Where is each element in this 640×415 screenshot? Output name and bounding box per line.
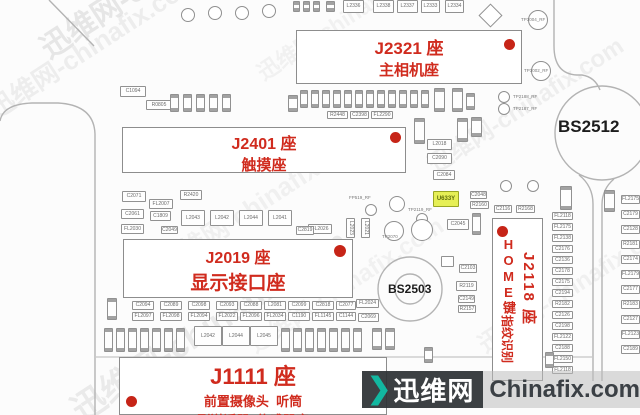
component-unlabeled <box>333 90 341 108</box>
component-unlabeled <box>441 256 454 267</box>
component-unlabeled <box>305 328 314 352</box>
component-FL2022: FL2022 <box>216 312 238 321</box>
component-unlabeled <box>281 328 290 352</box>
component-unlabeled <box>209 94 218 112</box>
component-unlabeled <box>326 1 335 12</box>
component-unlabeled <box>128 328 137 352</box>
component-C2045: C2045 <box>447 219 469 230</box>
component-FL2179: FL2179 <box>621 270 640 279</box>
component-L2337: L2337 <box>397 0 418 13</box>
connector-j2321-subtitle: 主相机座 <box>297 59 521 80</box>
component-unlabeled <box>317 328 326 352</box>
component-C2116: C2116 <box>494 205 512 213</box>
component-C2061: C2061 <box>121 209 144 219</box>
component-L2081: L2081 <box>264 301 286 310</box>
component-FL2150: FL2150 <box>552 355 573 363</box>
component-unlabeled <box>471 117 482 137</box>
component-L2338: L2338 <box>373 0 394 13</box>
component-R2168: R2168 <box>516 205 535 213</box>
component-unlabeled <box>353 328 362 352</box>
component-unlabeled <box>196 94 205 112</box>
connector-j2019-title: J2019 座 <box>124 244 352 268</box>
component-FL2175: FL2175 <box>552 223 573 231</box>
component-unlabeled <box>322 90 330 108</box>
component-unlabeled <box>452 88 463 112</box>
component-unlabeled <box>140 328 149 352</box>
component-unlabeled <box>344 90 352 108</box>
connector-j2019-subtitle: 显示接口座 <box>124 268 352 295</box>
component-L2333: L2333 <box>421 0 440 13</box>
component-FL2138: FL2138 <box>552 234 573 242</box>
testpoint-label-TP2070: TP2070 <box>382 234 398 239</box>
component-C2127: C2127 <box>621 315 640 324</box>
component-unlabeled <box>466 93 475 110</box>
component-C2069: C2069 <box>358 313 379 322</box>
connector-j1111-line2: 副送话器 传感器座 <box>120 410 386 415</box>
component-FL2123: FL2123 <box>621 330 640 339</box>
component-unlabeled <box>545 352 554 368</box>
component-C2178: C2178 <box>552 267 573 275</box>
component-L2043: L2043 <box>181 210 205 226</box>
component-C2093: C2093 <box>216 301 238 310</box>
component-unlabeled <box>377 90 385 108</box>
chevron-icon: ❯ <box>367 375 391 404</box>
component-FL2097: FL2097 <box>132 312 154 321</box>
component-C2149: C2149 <box>458 295 475 303</box>
component-C2818: C2818 <box>312 301 334 310</box>
component-unlabeled <box>399 90 407 108</box>
component-C2194: C2194 <box>552 289 573 297</box>
component-FL2122: FL2122 <box>552 333 573 341</box>
component-C2176: C2176 <box>552 245 573 253</box>
component-R2160: R2160 <box>470 201 489 209</box>
component-C2098: C2098 <box>188 301 210 310</box>
connector-j2321-title: J2321 座 <box>297 34 521 59</box>
watermark-bar: ❯ 迅维网 Chinafix.com <box>362 371 640 408</box>
highlighted-component-U633Y: U633Y <box>433 191 459 207</box>
component-FL1145: FL1145 <box>312 312 334 321</box>
testpoint-label-TP3002_RF: TP3002_RF <box>524 68 548 73</box>
component-C2099: C2099 <box>288 301 310 310</box>
component-FL2094: FL2094 <box>188 312 210 321</box>
component-C2094: C2094 <box>132 301 154 310</box>
component-unlabeled <box>288 95 298 112</box>
component-C2174: C2174 <box>621 255 640 264</box>
component-C2136: C2136 <box>552 256 573 264</box>
component-L2044: L2044 <box>239 210 263 226</box>
component-R2420: R2420 <box>180 190 202 200</box>
component-FL2290: FL2290 <box>371 111 393 119</box>
testpoint-label-TP2119_RF: TP2119_RF <box>408 207 432 212</box>
testpoint <box>208 6 222 20</box>
testpoint-label-TP2188_RF: TP2188_RF <box>513 94 537 99</box>
testpoint-label-TP2187_RF: TP2187_RF <box>513 106 537 111</box>
component-unlabeled <box>116 328 125 352</box>
component-C2398: C2398 <box>350 111 369 119</box>
component-R2157: R2157 <box>458 305 476 313</box>
testpoint <box>389 196 405 212</box>
component-FL2175: FL2175 <box>621 195 640 204</box>
component-L2041: L2041 <box>268 210 292 226</box>
component-R2181: R2181 <box>621 240 640 249</box>
watermark-site-cn: 迅维网 <box>393 371 474 408</box>
connector-j2321: J2321 座 主相机座 <box>296 30 522 84</box>
component-unlabeled <box>170 94 179 112</box>
connector-j2118: HOME键 指纹识别 J2118 座 <box>492 218 543 381</box>
testpoint <box>181 8 195 22</box>
bs2512-label: BS2512 <box>558 117 619 137</box>
watermark-bar-left: ❯ 迅维网 <box>362 371 483 408</box>
component-FL2098: FL2098 <box>160 312 182 321</box>
component-unlabeled <box>107 298 117 320</box>
connector-j2401: J2401 座 触摸座 <box>122 127 406 173</box>
component-L2042: L2042 <box>210 210 234 226</box>
testpoint <box>411 219 433 241</box>
bs2503-label: BS2503 <box>388 282 431 296</box>
component-unlabeled <box>152 328 161 352</box>
component-FL2034: FL2034 <box>264 312 286 321</box>
component-unlabeled <box>104 328 113 352</box>
component-unlabeled <box>410 90 418 108</box>
component-unlabeled <box>313 1 320 12</box>
component-C2090: C2090 <box>427 153 452 164</box>
connector-j2019-marker-dot <box>334 245 346 257</box>
component-C2128: C2128 <box>621 225 640 234</box>
component-C1144: C1144 <box>336 312 356 321</box>
testpoint <box>235 6 249 20</box>
connector-j2118-title: J2118 座 <box>519 252 540 326</box>
component-unlabeled <box>414 118 425 144</box>
component-unlabeled <box>222 94 231 112</box>
component-R2448: R2448 <box>327 111 348 119</box>
component-C2077: C2077 <box>336 301 356 310</box>
component-unlabeled <box>355 90 363 108</box>
component-unlabeled <box>385 328 395 350</box>
pcb-diagram: BS2512 BS2503 J2321 座 主相机座 J2401 座 触摸座 J… <box>0 0 640 415</box>
connector-j2118-fingerprint-label: 指纹识别 <box>499 315 516 363</box>
connector-j1111-title: J1111 座 <box>120 359 386 391</box>
component-FL2024: FL2024 <box>356 299 379 308</box>
component-unlabeled <box>176 328 185 352</box>
connector-j2118-marker-dot <box>497 226 508 237</box>
component-unlabeled <box>183 94 192 112</box>
testpoint <box>500 180 512 192</box>
component-unlabeled <box>366 90 374 108</box>
component-L2336: L2336 <box>343 0 364 13</box>
component-C2175: C2175 <box>552 278 573 286</box>
component-C2126: C2126 <box>552 311 573 319</box>
component-C2049: C2049 <box>161 226 178 234</box>
component-C2071: C2071 <box>122 191 146 202</box>
component-L2334: L2334 <box>445 0 464 13</box>
component-C2089: C2089 <box>160 301 182 310</box>
component-unlabeled <box>293 1 300 12</box>
component-C1809: C1809 <box>150 211 171 221</box>
testpoint-FP519_RF <box>365 204 377 216</box>
connector-j1111-marker-dot <box>126 396 137 407</box>
component-unlabeled <box>388 90 396 108</box>
component-unlabeled <box>164 328 173 352</box>
component-unlabeled <box>472 213 481 235</box>
connector-j1111-line1: 前置摄像头 听筒 <box>120 391 386 410</box>
component-C2189: C2189 <box>621 345 640 354</box>
connector-j2321-marker-dot <box>504 39 515 50</box>
component-unlabeled <box>421 90 429 108</box>
component-C2177: C2177 <box>621 285 640 294</box>
component-R2182: R2182 <box>552 300 573 308</box>
component-FL2007: FL2007 <box>149 199 173 209</box>
component-C2198: C2198 <box>552 322 573 330</box>
component-L2044: L2044 <box>222 326 250 346</box>
watermark-site-en: Chinafix.com <box>489 376 640 404</box>
component-C2084: C2084 <box>433 170 455 180</box>
component-R2119: R2119 <box>456 281 477 291</box>
connector-j2401-marker-dot <box>390 132 401 143</box>
connector-j2019: J2019 座 显示接口座 <box>123 239 353 298</box>
component-C1094: C1094 <box>120 86 146 97</box>
component-unlabeled <box>341 328 350 352</box>
component-unlabeled <box>311 90 319 108</box>
component-R0805: R0805 <box>146 100 172 110</box>
component-L2021: L2021 <box>361 218 370 238</box>
component-unlabeled <box>424 347 433 363</box>
component-L2018: L2018 <box>427 139 452 150</box>
component-R2183: R2183 <box>621 300 640 309</box>
component-unlabeled <box>434 88 445 112</box>
component-L2042: L2042 <box>194 326 222 346</box>
component-unlabeled <box>329 328 338 352</box>
testpoint <box>262 4 276 18</box>
component-L2045: L2045 <box>250 326 278 346</box>
component-unlabeled <box>604 190 615 212</box>
testpoint <box>527 180 539 192</box>
component-C1190: C1190 <box>288 312 310 321</box>
connector-j2118-home-label: HOME键 <box>499 237 518 315</box>
testpoint-TP2187_RF <box>498 103 510 115</box>
component-L2023: L2023 <box>346 218 355 238</box>
connector-j1111: J1111 座 前置摄像头 听筒 副送话器 传感器座 <box>119 357 387 415</box>
component-C2088: C2088 <box>240 301 262 310</box>
testpoint-TP2188_RF <box>498 91 510 103</box>
component-unlabeled <box>372 328 382 350</box>
component-unlabeled <box>303 1 310 12</box>
component-C2819: C2819 <box>296 226 314 235</box>
component-C2188: C2188 <box>552 344 573 352</box>
component-unlabeled <box>560 186 572 210</box>
component-C2048: C2048 <box>470 191 487 199</box>
testpoint-label-FP519_RF: FP519_RF <box>349 195 371 200</box>
testpoint-label-TP3004_RF: TP3004_RF <box>521 17 545 22</box>
watermark-bar-right: Chinafix.com <box>483 371 640 408</box>
component-C2103: C2103 <box>459 264 477 273</box>
component-unlabeled <box>293 328 302 352</box>
connector-j2401-title: J2401 座 <box>123 130 405 154</box>
component-unlabeled <box>457 118 468 142</box>
component-FL2118: FL2118 <box>552 212 573 220</box>
component-unlabeled <box>300 90 308 108</box>
connector-j2401-subtitle: 触摸座 <box>123 154 405 175</box>
component-FL2030: FL2030 <box>121 224 144 234</box>
component-FL2096: FL2096 <box>240 312 262 321</box>
component-C2179: C2179 <box>621 210 640 219</box>
